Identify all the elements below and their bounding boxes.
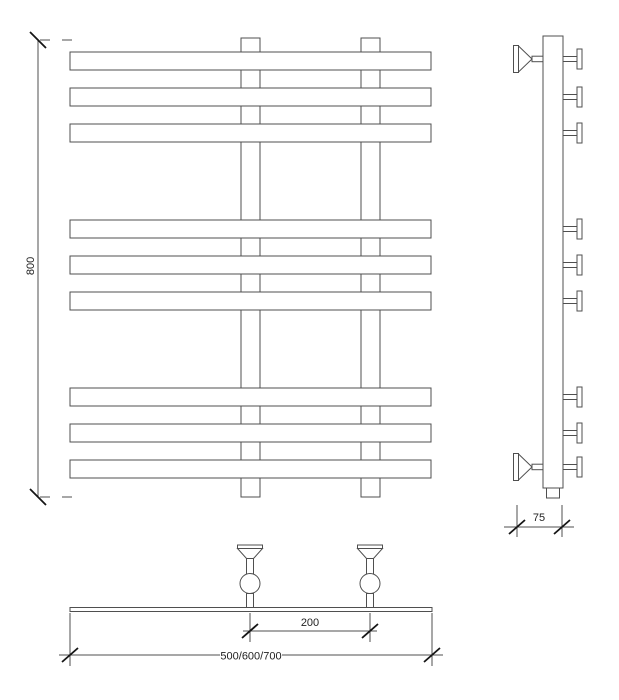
valve-stem: [367, 559, 374, 575]
bar-end-stub-2: [563, 87, 582, 107]
bar-end-stub-4: [563, 219, 582, 239]
valve-assembly-left-icon: [238, 545, 263, 608]
stub-cap: [577, 49, 582, 69]
towel-bar-8: [70, 424, 431, 442]
bar-end-stub-3: [563, 123, 582, 143]
valve-stem: [532, 56, 543, 62]
valve-stem: [532, 464, 543, 470]
valve-spacing-dimension: 200: [242, 613, 378, 642]
valve-funnel: [238, 549, 263, 559]
bar-end-stub-1: [563, 49, 582, 69]
stub-cap: [577, 457, 582, 477]
towel-bar-1: [70, 52, 431, 70]
stub-neck: [563, 431, 577, 436]
stub-neck: [563, 263, 577, 268]
stub-cap: [577, 291, 582, 311]
towel-bar-6: [70, 292, 431, 310]
stub-cap: [577, 423, 582, 443]
valve-cap: [358, 545, 383, 549]
technical-drawing: 800: [0, 0, 619, 700]
bar-end-stub-8: [563, 423, 582, 443]
stub-cap: [577, 219, 582, 239]
towel-bar-3: [70, 124, 431, 142]
stub-neck: [563, 131, 577, 136]
valve-cap: [238, 545, 263, 549]
depth-dimension: 75: [504, 505, 574, 537]
stub-neck: [563, 395, 577, 400]
bar-end-stub-7: [563, 387, 582, 407]
side-collector-tube: [543, 36, 563, 488]
valve-ball-icon: [240, 574, 260, 594]
valve-side-top-icon: [514, 46, 544, 73]
valve-cone: [519, 454, 533, 480]
stub-cap: [577, 387, 582, 407]
valve-side-bottom-icon: [514, 454, 544, 481]
side-tube-foot: [547, 488, 560, 498]
side-view: [514, 36, 583, 498]
valve-stem: [367, 594, 374, 608]
height-dimension-label: 800: [25, 257, 37, 275]
stub-neck: [563, 299, 577, 304]
width-dimension: 500/600/700: [59, 613, 443, 666]
towel-bar-4: [70, 220, 431, 238]
valve-spacing-dimension-label: 200: [301, 617, 319, 629]
stub-neck: [563, 57, 577, 62]
towel-bar-9: [70, 460, 431, 478]
stub-neck: [563, 227, 577, 232]
bar-end-stub-9: [563, 457, 582, 477]
rail-top-profile: [70, 608, 432, 612]
valve-stem: [247, 594, 254, 608]
valve-flange: [514, 46, 519, 73]
bar-end-stub-5: [563, 255, 582, 275]
towel-bar-5: [70, 256, 431, 274]
depth-dimension-label: 75: [533, 512, 545, 524]
valve-cone: [519, 46, 533, 72]
bar-end-stub-6: [563, 291, 582, 311]
stub-neck: [563, 465, 577, 470]
valve-ball-icon: [360, 574, 380, 594]
towel-bar-2: [70, 88, 431, 106]
stub-neck: [563, 95, 577, 100]
valve-funnel: [358, 549, 383, 559]
width-dimension-label: 500/600/700: [220, 651, 281, 663]
bottom-view: [70, 545, 432, 612]
stub-cap: [577, 123, 582, 143]
valve-stem: [247, 559, 254, 575]
stub-cap: [577, 255, 582, 275]
front-view: [70, 38, 431, 497]
towel-bar-7: [70, 388, 431, 406]
valve-assembly-right-icon: [358, 545, 383, 608]
stub-cap: [577, 87, 582, 107]
valve-flange: [514, 454, 519, 481]
drawing-canvas: 800: [0, 0, 619, 700]
